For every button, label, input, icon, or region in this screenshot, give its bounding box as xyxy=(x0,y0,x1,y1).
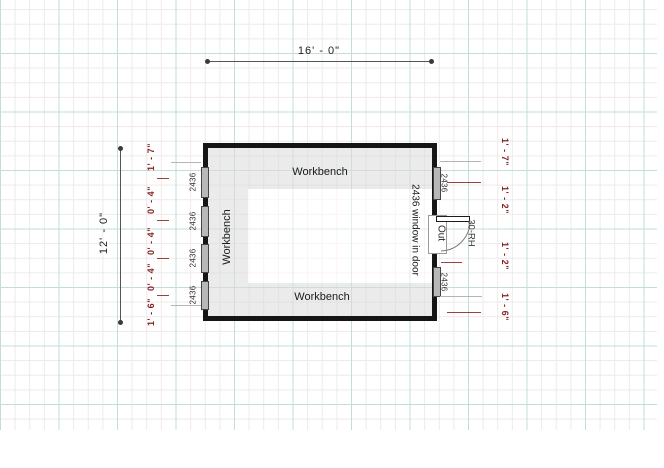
dimension-endpoint[interactable] xyxy=(205,59,210,64)
dim-chain-label[interactable]: 1' - 6" xyxy=(500,293,510,321)
floorplan-canvas: 16' - 0" 12' - 0" Workbench Workbench Wo… xyxy=(0,0,664,468)
dim-tick xyxy=(157,178,169,179)
dim-chain-label[interactable]: 1' - 6" xyxy=(146,298,156,326)
dimension-label-left[interactable]: 12' - 0" xyxy=(98,212,110,254)
window-size-label[interactable]: 2436 xyxy=(189,212,198,231)
window-left-4[interactable] xyxy=(201,281,209,310)
dim-chain-label[interactable]: 1' - 2" xyxy=(500,186,510,214)
dim-chain-label[interactable]: 1' - 7" xyxy=(500,138,510,166)
window-size-label[interactable]: 2436 xyxy=(189,286,198,305)
extension-line xyxy=(171,162,201,163)
extension-line xyxy=(440,161,481,162)
dim-chain-label[interactable]: 0' - 4" xyxy=(146,186,156,214)
workbench-bottom-label[interactable]: Workbench xyxy=(294,291,349,303)
window-left-2[interactable] xyxy=(201,206,209,237)
dimension-endpoint[interactable] xyxy=(118,146,123,151)
window-left-1[interactable] xyxy=(201,167,209,198)
door-swing-label[interactable]: Out xyxy=(436,225,447,241)
workbench-top-label[interactable]: Workbench xyxy=(292,166,347,178)
dim-tick xyxy=(157,295,169,296)
workbench-left-label[interactable]: Workbench xyxy=(221,209,233,264)
dimension-label-top[interactable]: 16' - 0" xyxy=(298,45,340,57)
door-note-label[interactable]: 2436 window in door xyxy=(410,184,421,276)
window-left-3[interactable] xyxy=(201,244,209,273)
dim-chain-label[interactable]: 1' - 2" xyxy=(500,242,510,270)
dimension-line-top[interactable] xyxy=(207,61,431,62)
extension-line xyxy=(440,296,482,297)
dimension-endpoint[interactable] xyxy=(429,59,434,64)
dim-chain-label[interactable]: 0' - 4" xyxy=(146,263,156,291)
dimension-endpoint[interactable] xyxy=(118,320,123,325)
extension-line xyxy=(171,305,201,306)
dimension-line-left[interactable] xyxy=(120,148,121,322)
dim-chain-label[interactable]: 0' - 4" xyxy=(146,227,156,255)
dim-tick xyxy=(447,312,481,313)
dim-chain-label[interactable]: 1' - 7" xyxy=(146,143,156,171)
window-size-label[interactable]: 2436 xyxy=(440,273,449,292)
door-type-label[interactable]: 30-RH xyxy=(466,219,477,246)
window-size-label[interactable]: 2436 xyxy=(189,249,198,268)
dim-tick xyxy=(157,258,169,259)
window-size-label[interactable]: 2436 xyxy=(440,174,449,193)
dim-tick xyxy=(447,182,481,183)
dim-tick xyxy=(157,220,169,221)
window-size-label[interactable]: 2436 xyxy=(189,173,198,192)
dim-tick xyxy=(441,262,462,263)
